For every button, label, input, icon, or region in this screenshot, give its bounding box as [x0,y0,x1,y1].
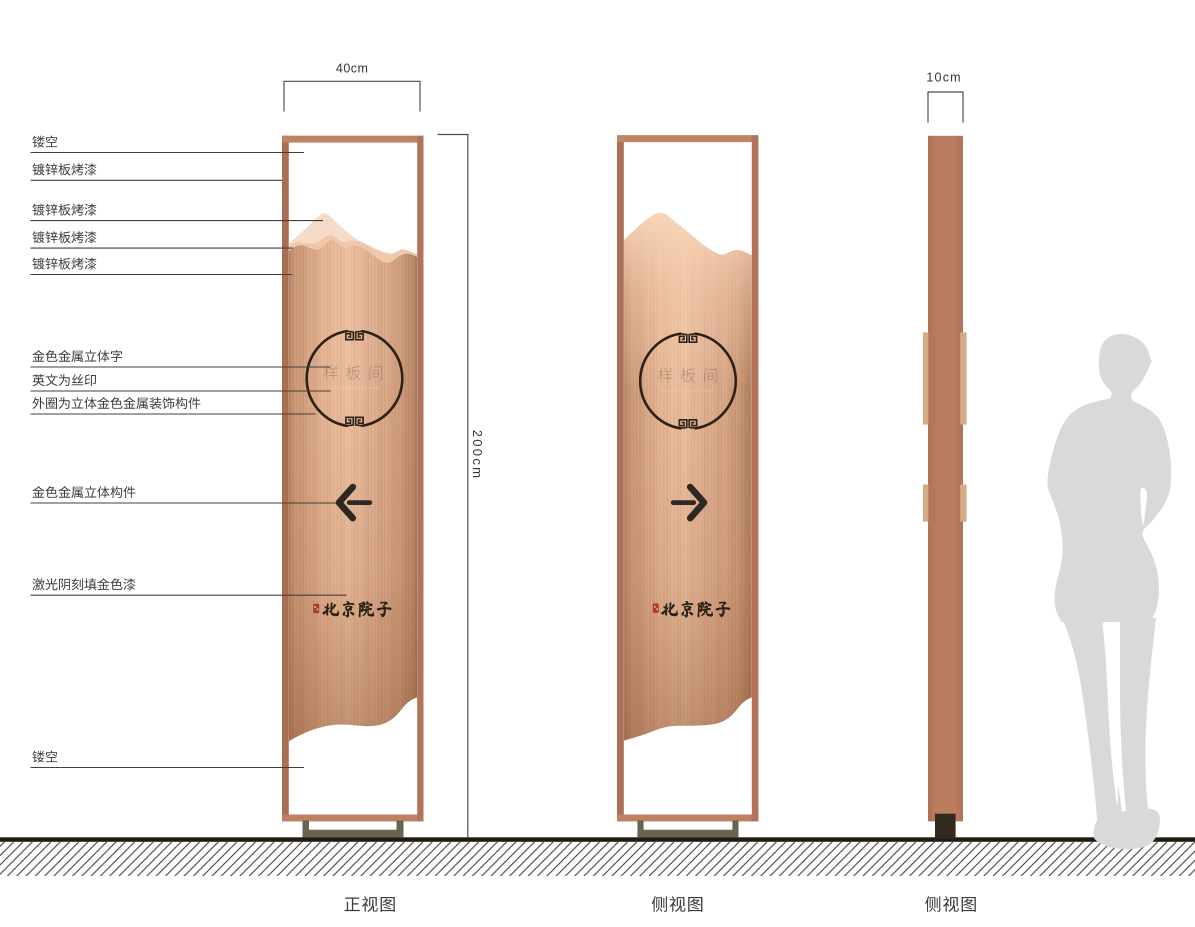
svg-text:200cm: 200cm [470,430,485,481]
svg-text:BEIJING COURTYARD: BEIJING COURTYARD [662,389,713,393]
svg-text:40cm: 40cm [336,62,369,76]
svg-text:10cm: 10cm [926,71,961,85]
svg-text:BEIJING COURTYARD: BEIJING COURTYARD [329,387,380,391]
